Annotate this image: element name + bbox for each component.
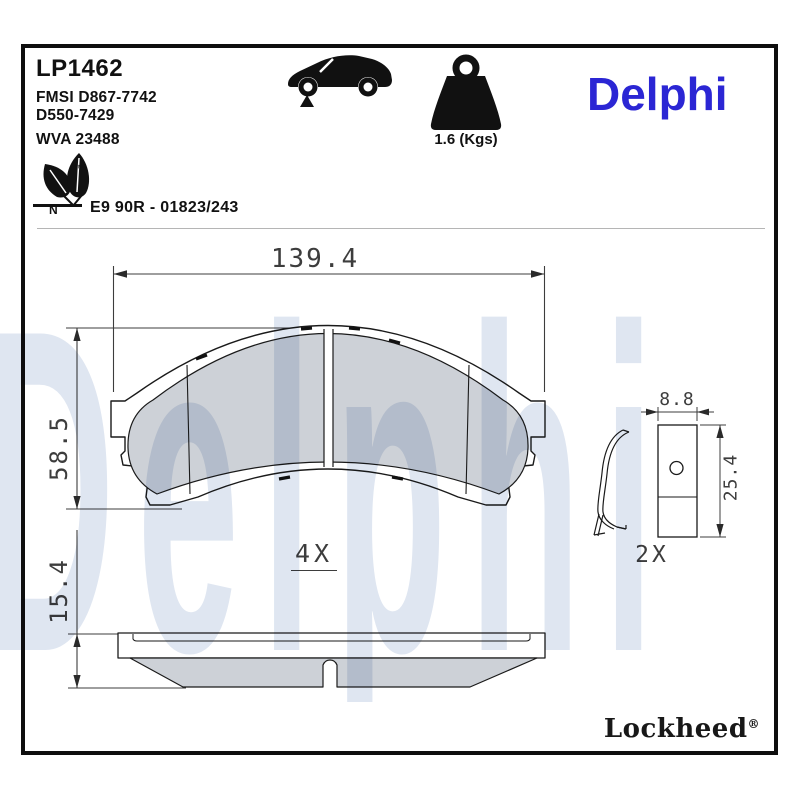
clip-width-dimension: 8.8 xyxy=(655,389,699,410)
lockheed-logo: Lockheed® xyxy=(590,714,760,744)
delphi-logo: Delphi xyxy=(587,69,728,120)
clip-hole xyxy=(670,462,683,475)
fmsi-reference: FMSI D867-7742 xyxy=(36,89,157,107)
clip-side-profile xyxy=(594,430,629,536)
leaf-icon xyxy=(33,153,89,206)
eco-mark-letter: N xyxy=(49,203,58,217)
centre-slot xyxy=(324,329,333,467)
wva-reference: WVA 23488 xyxy=(36,131,120,149)
side-backplate xyxy=(118,633,545,658)
part-number: LP1462 xyxy=(36,55,123,83)
pad-width-dimension: 139.4 xyxy=(255,244,375,274)
car-icon xyxy=(288,55,392,107)
clip-quantity: 2X xyxy=(630,542,674,568)
side-friction xyxy=(130,658,537,687)
ece-approval-number: E9 90R - 01823/243 xyxy=(90,199,239,217)
pad-thickness-dimension: 15.4 xyxy=(45,546,73,636)
pad-height-dimension: 58.5 xyxy=(45,403,73,493)
leaf-trademark: ™ xyxy=(74,163,83,173)
header-divider xyxy=(37,228,765,229)
weight-icon xyxy=(431,58,501,130)
clip-front-view xyxy=(641,407,726,537)
brake-pad-datasheet: LP1462 FMSI D867-7742 D550-7429 WVA 2348… xyxy=(0,0,800,800)
fmsi-reference-2: D550-7429 xyxy=(36,107,115,125)
registered-mark: ® xyxy=(748,717,761,731)
front-view xyxy=(66,266,545,509)
pad-quantity: 4X xyxy=(291,539,337,571)
clip-height-dimension: 25.4 xyxy=(721,428,742,528)
weight-value: 1.6 (Kgs) xyxy=(414,131,518,148)
front-axle-marker xyxy=(300,95,314,107)
